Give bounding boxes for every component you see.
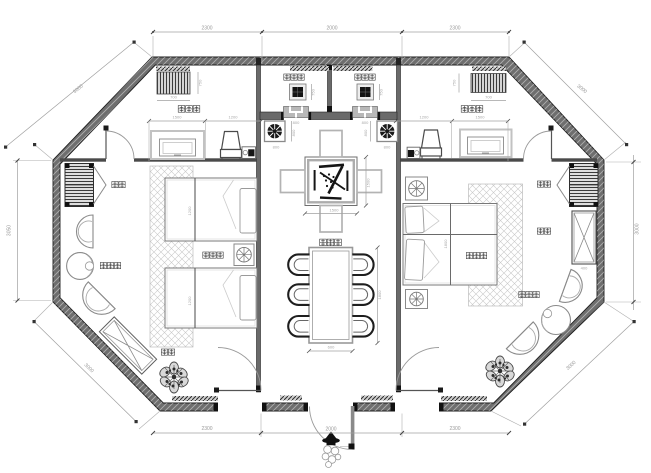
svg-text:800: 800: [362, 120, 369, 125]
svg-text:2300: 2300: [201, 426, 212, 432]
svg-text:2300: 2300: [201, 26, 212, 32]
svg-text:3000: 3000: [635, 223, 641, 234]
svg-text:1500: 1500: [330, 208, 340, 213]
svg-text:800: 800: [384, 145, 391, 150]
svg-text:750: 750: [198, 79, 203, 86]
svg-text:2000: 2000: [326, 26, 337, 32]
svg-text:1800: 1800: [377, 290, 382, 300]
svg-text:2300: 2300: [449, 26, 460, 32]
svg-text:750: 750: [379, 88, 384, 95]
svg-text:700: 700: [170, 95, 177, 100]
svg-text:1800: 1800: [443, 239, 448, 249]
svg-text:700: 700: [485, 95, 492, 100]
svg-text:600: 600: [328, 345, 335, 350]
svg-text:800: 800: [291, 129, 296, 136]
svg-text:1200: 1200: [229, 115, 239, 120]
svg-text:400: 400: [581, 266, 588, 271]
svg-text:1200: 1200: [187, 296, 192, 306]
svg-text:750: 750: [311, 88, 316, 95]
svg-text:1500: 1500: [366, 178, 371, 188]
svg-text:1500: 1500: [476, 115, 486, 120]
svg-text:800: 800: [293, 120, 300, 125]
svg-text:1200: 1200: [187, 206, 192, 216]
svg-text:800: 800: [273, 145, 280, 150]
svg-text:750: 750: [452, 79, 457, 86]
svg-text:2000: 2000: [325, 427, 336, 433]
svg-text:2300: 2300: [449, 426, 460, 432]
svg-text:1200: 1200: [420, 115, 430, 120]
svg-text:1500: 1500: [173, 115, 183, 120]
svg-text:800: 800: [363, 129, 368, 136]
svg-text:3050: 3050: [7, 225, 13, 236]
